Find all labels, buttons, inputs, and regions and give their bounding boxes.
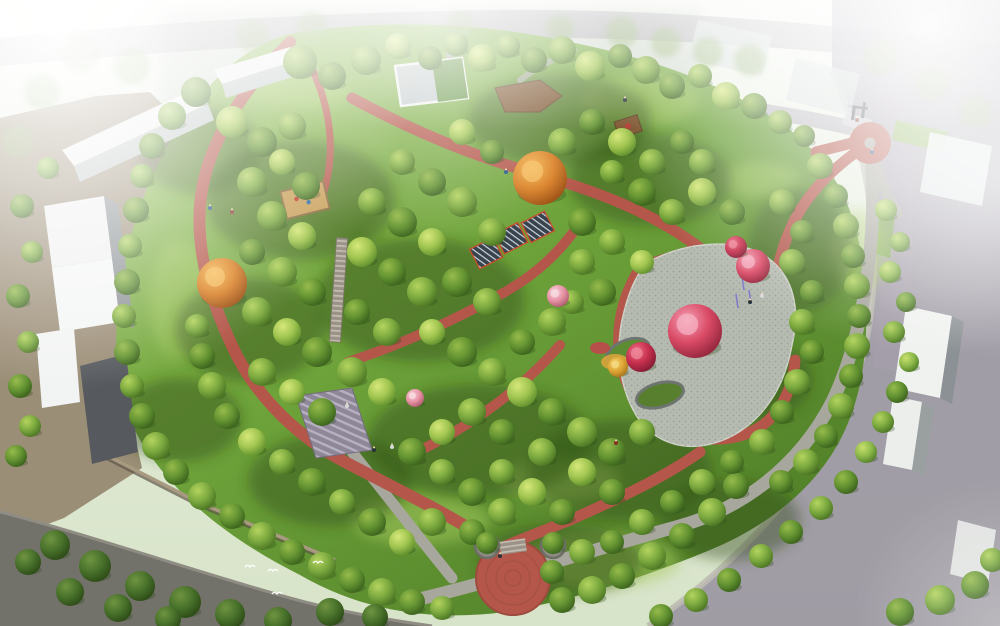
park-aerial-rendering [0, 0, 1000, 626]
rendering-canvas [0, 0, 1000, 626]
bottomright-haze [0, 0, 1000, 626]
haze-layer [0, 0, 1000, 626]
